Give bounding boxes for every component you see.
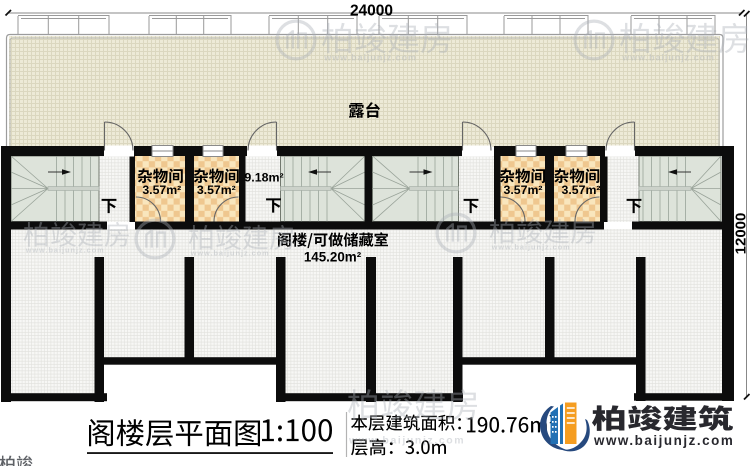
svg-text:3.57m²: 3.57m²: [197, 183, 236, 197]
svg-text:www.baijunjz.com: www.baijunjz.com: [621, 53, 715, 63]
svg-text:9.18m²: 9.18m²: [244, 171, 283, 185]
svg-text:24000: 24000: [350, 3, 393, 20]
svg-text:www.baijunjz.com: www.baijunjz.com: [25, 246, 105, 255]
svg-text:www.baijunjz.com: www.baijunjz.com: [323, 53, 417, 63]
svg-text:3.57m²: 3.57m²: [562, 183, 601, 197]
svg-text:www.baijunjz.com: www.baijunjz.com: [348, 435, 465, 447]
svg-text:3.57m²: 3.57m²: [504, 183, 543, 197]
svg-text:145.20m²: 145.20m²: [304, 250, 362, 265]
svg-text:www.baijunjz.com: www.baijunjz.com: [190, 249, 270, 258]
svg-text:12000: 12000: [732, 213, 749, 255]
svg-text:www.baijunjz.com: www.baijunjz.com: [491, 243, 571, 252]
svg-text:www.baijunjz.com: www.baijunjz.com: [593, 433, 734, 448]
svg-text:3.57m²: 3.57m²: [142, 183, 181, 197]
